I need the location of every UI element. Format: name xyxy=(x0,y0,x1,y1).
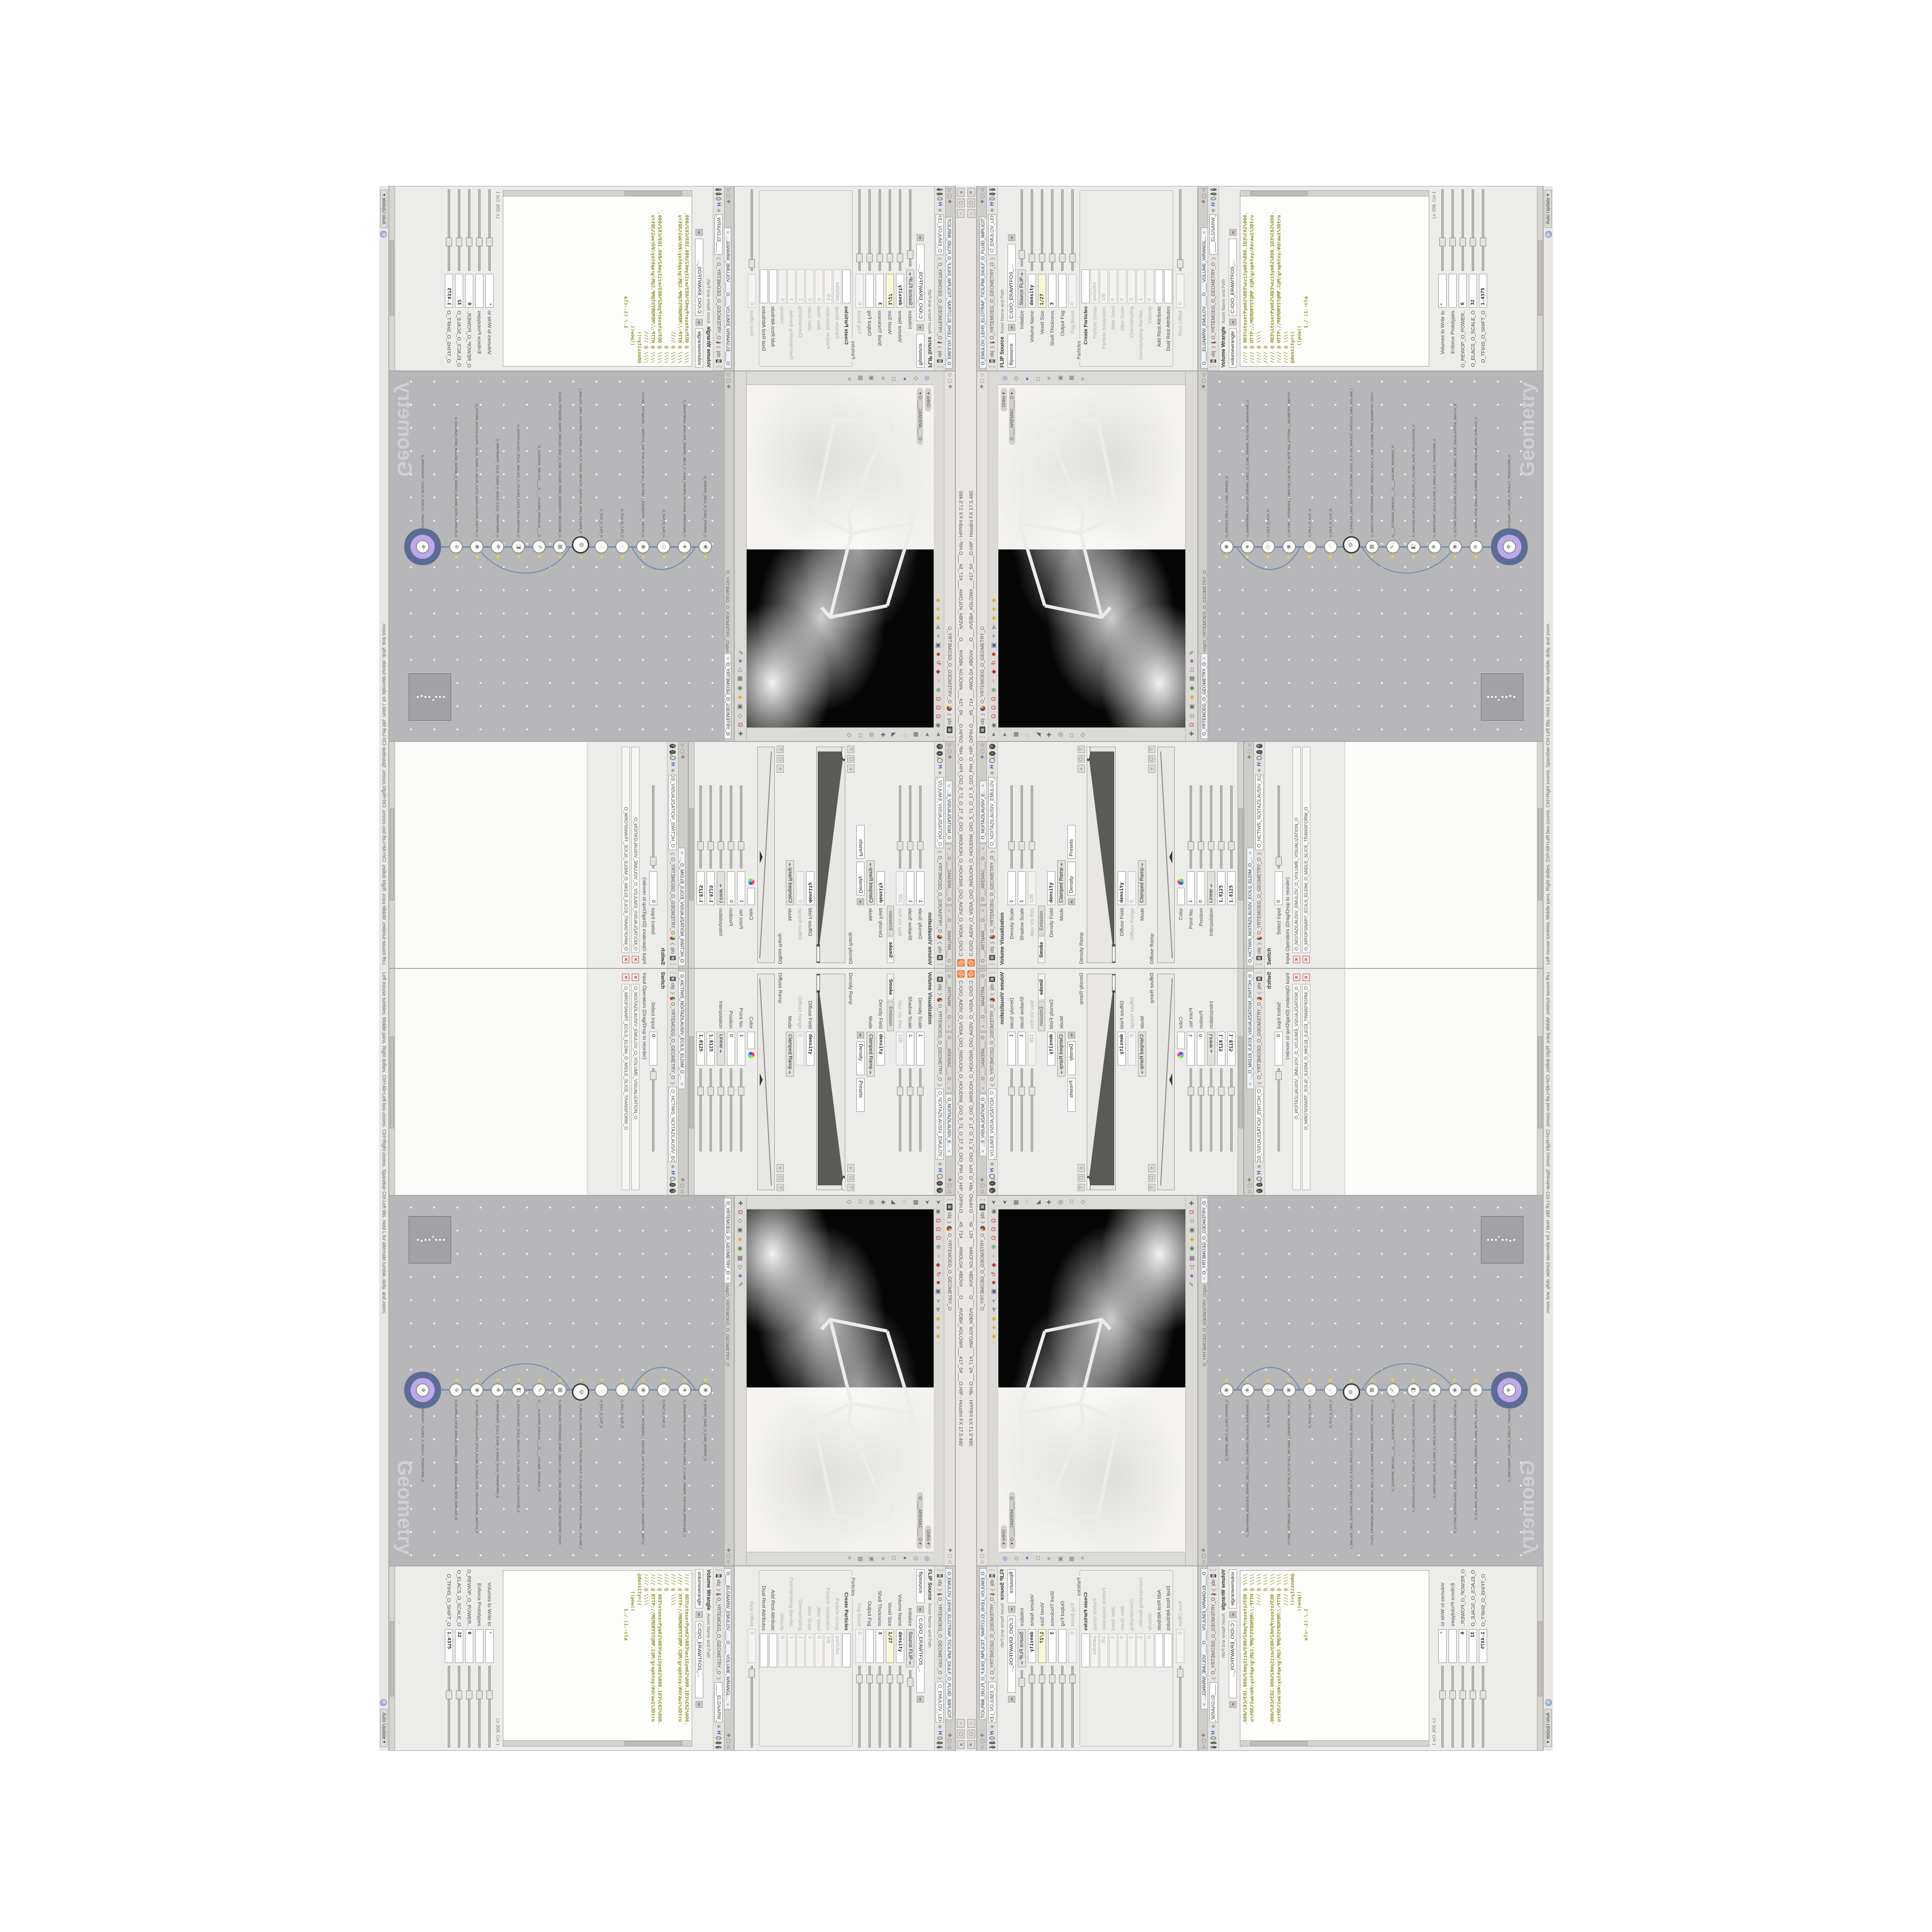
slider[interactable] xyxy=(1210,785,1212,868)
slider[interactable] xyxy=(1472,189,1474,271)
network-path[interactable]: /obj/O_YRTEMOEG_O_GEOMETRY_O xyxy=(724,1284,730,1366)
slider[interactable] xyxy=(740,1068,742,1151)
node-name-field[interactable]: O_EMULOV_LEHS_ELCITRAP_TICILPMI_DI xyxy=(936,214,944,255)
asset-path-field[interactable]: C:/O/O_ERAWTFOS_... xyxy=(695,1621,703,1698)
network-node[interactable]: ◍ O_EMULOV_LEHS_ELCITRAP_TICILPMI_DIULF_… xyxy=(1345,1383,1358,1548)
node-flag-icon[interactable] xyxy=(663,555,666,558)
slider[interactable] xyxy=(1278,785,1280,868)
search-icon[interactable] xyxy=(989,1174,995,1179)
slider[interactable] xyxy=(1010,1068,1013,1151)
asset-name-field[interactable]: volumewrangle xyxy=(1229,1569,1237,1608)
help-icon[interactable]: ? xyxy=(1256,1189,1263,1193)
minimize-button[interactable]: – xyxy=(957,209,965,218)
pane-tab[interactable]: O ___ARTNAM___ O...✕ xyxy=(980,906,986,966)
diffuse-ramp-widget[interactable] xyxy=(757,974,775,1190)
node-flag-icon[interactable] xyxy=(455,1378,458,1381)
network-minimap[interactable] xyxy=(409,1216,451,1264)
camera-pill[interactable]: O ___AREMAC___ O ▾ xyxy=(1009,1492,1015,1549)
search-icon[interactable] xyxy=(670,1177,676,1181)
network-node[interactable]: ◈ O_EMARFERIW_NOGYLOP_EREHPS_EBUC_O_CUBE… xyxy=(1241,1383,1254,1548)
slider[interactable] xyxy=(448,1666,450,1747)
asset-path-field[interactable]: C:/O/O_ERAWTFOS_... xyxy=(1229,239,1237,316)
vex-snippet-editor[interactable]: //// @ 0D3%steserPym62%0D3%eziSym62%000.… xyxy=(503,1570,692,1747)
node-name-field[interactable]: O_NOITAZILAUSIV_EMULOV_O_VO xyxy=(936,1089,944,1160)
ramp-controls[interactable]: ＋▢▽ xyxy=(777,746,784,773)
node-flag-icon[interactable] xyxy=(1433,1378,1435,1381)
camera-pill[interactable]: O ___AREMAC___ O ▾ xyxy=(917,388,923,445)
network-node[interactable]: ◧ O_NOITAZILAUSIV_ECILS_EMULOV_O_VOLUME_… xyxy=(512,388,525,554)
info-icon[interactable]: i xyxy=(937,1181,943,1186)
network-node[interactable]: ✥ O_MROFSNART_ECILS_ELDIM_O_MIDLE_SLICE_… xyxy=(491,1383,504,1548)
slider[interactable] xyxy=(1179,189,1181,271)
search-icon[interactable] xyxy=(1256,756,1262,760)
slider[interactable] xyxy=(1210,1068,1212,1151)
search-icon[interactable] xyxy=(716,197,722,200)
network-node[interactable]: ◉ O_EREHPS_EBUC_O_CUBE_SPHERE_O xyxy=(1221,1383,1233,1548)
gear-icon[interactable]: ✳ xyxy=(937,1724,943,1729)
pane-tab[interactable]: O____ELGNARW_EMULOV____O____VOLUME_WRANG… xyxy=(724,1568,731,1709)
help-icon[interactable]: ? xyxy=(937,188,943,191)
houdini-help-icon[interactable]: H xyxy=(1256,762,1262,766)
network-node[interactable]: ▦ O_SNOGYLOP_YRTEMOEG_MORF_EMULOV_BDV_O_… xyxy=(1366,1383,1378,1548)
network-node[interactable]: ◉ O_HCTIWS_YRTEMOEG_LANRETXE_LANRETNI_O_… xyxy=(637,388,649,554)
network-node[interactable]: ◌ O_PILC_O_CLIP_O xyxy=(616,388,628,554)
presets-menu[interactable]: Presets xyxy=(856,1078,865,1112)
pane-tab[interactable]: O_EMULOV_LEHS_ELCITRAP_TICILPMI_DIULF_O_… xyxy=(946,1568,952,1720)
node-flag-icon[interactable] xyxy=(476,1378,479,1381)
node-flag-icon[interactable] xyxy=(422,1378,425,1381)
slider[interactable] xyxy=(458,189,460,271)
close-button[interactable]: ✕ xyxy=(957,188,965,197)
auto-update-selector[interactable]: Auto Update ▾ xyxy=(380,1709,387,1747)
viewport-render-area[interactable]: Ortho ▾O ___AREMAC___ O ▾ xyxy=(746,1209,934,1552)
minimize-button[interactable]: – xyxy=(957,1719,965,1728)
tab-emission[interactable]: Emission xyxy=(1038,906,1045,936)
search-icon[interactable] xyxy=(989,197,995,200)
gear-icon[interactable]: ✳ xyxy=(989,208,995,213)
ramp-controls[interactable]: ＋▢▽ xyxy=(1148,1164,1155,1191)
breadcrumb-geo[interactable]: O_YRTEMOEG_O_GEOMETRY_O xyxy=(990,1004,995,1081)
node-flag-icon[interactable] xyxy=(422,555,425,558)
node-name-field[interactable]: O_NOITAZILAUSIV_EMULOV_O_VO xyxy=(936,777,944,848)
slider[interactable] xyxy=(1031,189,1033,271)
link-arrows-icon[interactable]: ⇧⇩ xyxy=(989,1568,995,1572)
node-flag-icon[interactable] xyxy=(663,1378,666,1381)
pane-tab[interactable]: O_NOITAZILAUSIV_E...✕ xyxy=(946,1094,952,1156)
node-flag-icon[interactable] xyxy=(1370,1378,1373,1381)
slider[interactable] xyxy=(889,1666,891,1747)
search-icon[interactable] xyxy=(1256,1177,1262,1181)
remove-icon[interactable]: ✕ xyxy=(632,956,639,963)
pane-controls[interactable]: ✚▢◁ xyxy=(724,1733,731,1748)
node-flag-icon[interactable] xyxy=(1287,555,1290,558)
slider[interactable] xyxy=(909,785,911,868)
breadcrumb-root[interactable]: obj xyxy=(990,947,995,953)
gear-icon[interactable]: ✳ xyxy=(1210,1724,1217,1729)
search-icon[interactable] xyxy=(1210,1736,1216,1740)
density-ramp-widget[interactable] xyxy=(816,747,845,963)
node-flag-icon[interactable] xyxy=(1308,1378,1311,1381)
node-flag-icon[interactable] xyxy=(1453,1378,1456,1381)
network-node[interactable]: ◉ O_HCTIWS_NOITAZILAUSIV_ECILS_ELDIM_O_M… xyxy=(1449,388,1462,554)
slider[interactable] xyxy=(919,1068,922,1151)
h-scrollbar[interactable] xyxy=(1537,186,1543,370)
v-scrollbar[interactable] xyxy=(1240,191,1429,197)
obj-context-icon[interactable]: ▦ xyxy=(947,726,952,733)
slider[interactable] xyxy=(1441,189,1444,271)
pane-controls[interactable]: ✚▢◁ xyxy=(724,1548,731,1563)
network-node[interactable]: ▦ O_SNOGYLOP_YRTEMOEG_MORF_EMULOV_BDV_O_… xyxy=(1366,388,1378,554)
gear-icon[interactable]: ✳ xyxy=(1256,1164,1263,1168)
node-flag-icon[interactable] xyxy=(1507,555,1510,558)
tab-smoke[interactable]: Smoke xyxy=(1038,937,1045,963)
slider[interactable] xyxy=(899,189,901,271)
color-wheel-icon[interactable] xyxy=(748,1052,754,1058)
node-flag-icon[interactable] xyxy=(1391,1378,1394,1381)
network-node[interactable]: ◍ O_EMULOV_LEHS_ELCITRAP_TICILPMI_DIULF_… xyxy=(1345,388,1358,554)
node-name-field[interactable]: O_NOITAZILAUSIV_EMULOV_O_VO xyxy=(988,1089,996,1160)
slider[interactable] xyxy=(1010,785,1013,868)
houdini-help-icon[interactable]: H xyxy=(937,1168,943,1172)
houdini-help-icon[interactable]: H xyxy=(937,765,943,769)
network-node[interactable]: ✥ O_MROFSNART_TLUSER_O_RESULT_TRANSFORM_… xyxy=(416,1383,429,1548)
h-scrollbar[interactable] xyxy=(389,186,395,370)
v-scrollbar[interactable] xyxy=(503,1740,692,1746)
density-ramp-widget[interactable] xyxy=(1087,747,1116,963)
network-minimap[interactable] xyxy=(1481,673,1523,721)
pane-tab[interactable]: O_YRTEMOEG_O_GEOMETRY_O✕ xyxy=(724,653,731,739)
link-arrows-icon[interactable]: ⇧⇩ xyxy=(937,365,943,369)
ramp-controls[interactable]: ＋▢▽ xyxy=(1148,746,1155,773)
node-flag-icon[interactable] xyxy=(1225,1378,1228,1381)
search-icon[interactable] xyxy=(937,758,943,763)
slider[interactable] xyxy=(858,189,861,271)
help-icon[interactable]: ? xyxy=(716,1746,722,1748)
slider[interactable] xyxy=(899,1666,901,1747)
tab-smoke[interactable]: Smoke xyxy=(1038,974,1045,1000)
node-flag-icon[interactable] xyxy=(538,555,541,558)
gear-icon[interactable]: ✳ xyxy=(937,771,943,775)
gear-icon[interactable]: ✳ xyxy=(989,771,995,775)
obj-context-icon[interactable]: ▦ xyxy=(670,977,676,981)
network-node[interactable]: ◇ O_PILF_O_FLIP_O xyxy=(657,1383,670,1548)
slider[interactable] xyxy=(740,785,742,868)
network-node[interactable]: ◧ O_NOITAZILAUSIV_ECILS_EMULOV_O_VOLUME_… xyxy=(1407,1383,1420,1548)
diffuse-ramp-widget[interactable] xyxy=(1157,974,1175,1190)
pane-controls[interactable]: ✚▢◁ xyxy=(946,1178,952,1193)
camera-pill[interactable]: Ortho ▾ xyxy=(925,1525,931,1549)
slider[interactable] xyxy=(488,189,491,271)
slider[interactable] xyxy=(1179,1666,1181,1747)
slider[interactable] xyxy=(1031,1068,1033,1151)
help-icon[interactable]: ? xyxy=(670,744,676,748)
slider[interactable] xyxy=(1061,189,1064,271)
pane-controls[interactable]: ✚▢◁ xyxy=(1201,373,1207,389)
help-icon[interactable]: ? xyxy=(937,1188,943,1193)
link-arrows-icon[interactable]: ⇧⇩ xyxy=(946,1198,953,1202)
remove-icon[interactable]: ✕ xyxy=(1293,974,1300,981)
network-node[interactable]: ✥ O_MROFSNART_TLUSER_O_RESULT_TRANSFORM_… xyxy=(1503,1383,1516,1548)
camera-pill[interactable]: Ortho ▾ xyxy=(1001,1525,1007,1549)
node-flag-icon[interactable] xyxy=(642,555,645,558)
v-scrollbar[interactable] xyxy=(1240,1740,1429,1746)
minimize-button[interactable]: – xyxy=(967,209,975,218)
node-flag-icon[interactable] xyxy=(1474,555,1477,558)
houdini-help-icon[interactable]: H xyxy=(989,1731,995,1734)
link-arrows-icon[interactable]: ⇧⇩ xyxy=(979,735,986,739)
network-node[interactable]: ◇ O_PILF_O_FLIP_O xyxy=(1262,388,1275,554)
asset-name-field[interactable]: flipsource xyxy=(916,334,924,368)
remove-icon[interactable]: ✕ xyxy=(623,956,630,963)
node-flag-icon[interactable] xyxy=(517,1378,520,1381)
node-name-field[interactable]: O_HCTIWS_NOITAZILAUSIV_ECILS_ELDIM_O_ xyxy=(1255,1087,1264,1162)
network-node[interactable]: ◌ O_PILC_O_CLIP_O xyxy=(1304,388,1316,554)
node-name-field[interactable]: O_EMULOV_LEHS_ELCITRAP_TICILPMI_DI xyxy=(988,214,996,255)
slider[interactable] xyxy=(879,189,881,271)
ramp-prev-icon[interactable]: ◂▸ xyxy=(1068,1032,1075,1038)
slider[interactable] xyxy=(858,1666,861,1747)
pane-controls[interactable]: ✚▢◁ xyxy=(980,188,986,204)
network-node[interactable]: ◍ O_EMULOV_LEHS_ELCITRAP_TICILPMI_DIULF_… xyxy=(574,388,587,554)
ramp-prev-icon[interactable]: ◂▸ xyxy=(857,898,864,905)
slider[interactable] xyxy=(1031,1666,1033,1747)
slider[interactable] xyxy=(730,1068,732,1151)
pane-tab[interactable]: O ___AREMAC___ O...✕ xyxy=(946,1032,952,1093)
camera-pill[interactable]: Ortho ▾ xyxy=(925,388,931,412)
node-name-field[interactable]: ____ELGNARW_EMULOV____O____VOl xyxy=(1209,214,1218,255)
pane-controls[interactable]: ✚▢◁ xyxy=(980,744,986,759)
node-flag-icon[interactable] xyxy=(1507,1378,1510,1381)
asset-name-field[interactable]: volumewrangle xyxy=(695,328,703,368)
node-flag-icon[interactable] xyxy=(476,555,479,558)
slider[interactable] xyxy=(1462,189,1464,271)
slider[interactable] xyxy=(1021,1068,1023,1151)
obj-context-icon[interactable]: ▦ xyxy=(670,956,676,960)
obj-context-icon[interactable]: ▦ xyxy=(989,955,995,960)
asset-path-field[interactable]: C:/O/O_ERAWTFOS_... xyxy=(916,244,924,321)
network-minimap[interactable] xyxy=(1481,1216,1523,1264)
h-scrollbar[interactable] xyxy=(1537,742,1543,968)
h-scrollbar[interactable] xyxy=(1537,969,1543,1195)
slider[interactable] xyxy=(730,785,732,868)
slider[interactable] xyxy=(458,1666,460,1747)
slider[interactable] xyxy=(868,1666,871,1747)
help-icon[interactable]: ? xyxy=(989,744,995,749)
link-arrows-icon[interactable]: ⇧⇩ xyxy=(1256,962,1263,966)
density-ramp-widget[interactable] xyxy=(1087,974,1116,1190)
slider[interactable] xyxy=(1230,785,1233,868)
houdini-help-icon[interactable]: H xyxy=(716,202,722,206)
node-flag-icon[interactable] xyxy=(1329,555,1332,558)
close-button[interactable]: ✕ xyxy=(967,1740,975,1749)
minimize-button[interactable]: – xyxy=(967,1719,975,1728)
slider[interactable] xyxy=(1472,1666,1474,1747)
breadcrumb-geo[interactable]: O_YRTEMOEG_O_GEOMETRY_O xyxy=(938,1004,943,1081)
node-flag-icon[interactable] xyxy=(1246,555,1249,558)
auto-update-selector[interactable]: Auto Update ▾ xyxy=(1545,190,1552,228)
restore-button[interactable]: ▢ xyxy=(957,1730,965,1738)
h-scrollbar[interactable] xyxy=(389,742,395,968)
ramp-controls[interactable]: ＋▢▽ xyxy=(1078,746,1085,773)
pane-tab[interactable]: O_HCTIWS_NOITAZILAUSIV_ECILS_ELDIM_O_...… xyxy=(679,971,685,1089)
search-icon[interactable] xyxy=(989,758,995,763)
slider[interactable] xyxy=(488,1666,491,1747)
presets-menu[interactable]: Presets xyxy=(1067,825,1076,859)
tab-emission[interactable]: Emission xyxy=(1038,1001,1045,1032)
slider[interactable] xyxy=(652,785,654,868)
network-node[interactable]: ◇ O_PILF_O_FLIP_O xyxy=(657,388,670,554)
network-canvas[interactable]: Geometry ◉ O_EREHPS_EBUC_O_CUBE_SPHERE_O xyxy=(389,371,724,741)
vex-snippet-editor[interactable]: //// @ 0D3%steserPym62%0D3%eziSym62%000.… xyxy=(1240,190,1429,367)
slider[interactable] xyxy=(468,189,470,271)
vex-snippet-editor[interactable]: //// @ 0D3%steserPym62%0D3%eziSym62%000.… xyxy=(1240,1570,1429,1747)
help-icon[interactable]: ? xyxy=(937,1746,943,1748)
network-node[interactable]: ◉ O_HCTIWS_NOITAZILAUSIV_ECILS_ELDIM_O_M… xyxy=(1449,1383,1462,1548)
camera-pill[interactable]: O ___AREMAC___ O ▾ xyxy=(917,1492,923,1549)
node-flag-icon[interactable] xyxy=(559,555,562,558)
network-node[interactable]: ◉ O_HCTIWS_NOITAZILAUSIV_ECILS_ELDIM_O_M… xyxy=(470,1383,483,1548)
network-node[interactable]: ◉ O_HCTIWS_YRTEMOEG_LANRETXE_LANRETNI_O_… xyxy=(1283,388,1295,554)
node-flag-icon[interactable] xyxy=(1370,555,1373,558)
link-arrows-icon[interactable]: ⇧⇩ xyxy=(979,1198,986,1202)
color-wheel-icon[interactable] xyxy=(748,879,754,885)
camera-pill[interactable]: O ___AREMAC___ O ▾ xyxy=(1009,388,1015,445)
slider[interactable] xyxy=(909,1068,911,1151)
network-minimap[interactable] xyxy=(409,673,451,721)
pane-tab[interactable]: O____ELGNARW_EMULOV____O____VOLUME_WRANG… xyxy=(1201,1568,1207,1709)
node-flag-icon[interactable] xyxy=(455,555,458,558)
slider[interactable] xyxy=(1031,785,1033,868)
slider[interactable] xyxy=(1451,189,1454,271)
link-arrows-icon[interactable]: ⇧⇩ xyxy=(989,365,995,369)
remove-icon[interactable]: ✕ xyxy=(1303,974,1310,981)
auto-update-selector[interactable]: Auto Update ▾ xyxy=(380,190,387,228)
gear-icon[interactable]: ✳ xyxy=(716,1724,722,1729)
link-arrows-icon[interactable]: ⇧⇩ xyxy=(937,971,943,975)
network-node[interactable]: ✥ O_MROFSNART_TLUSER_O_RESULT_TRANSFORM_… xyxy=(416,388,429,554)
search-icon[interactable] xyxy=(937,197,943,200)
node-flag-icon[interactable] xyxy=(497,555,499,558)
link-arrows-icon[interactable]: ⇧⇩ xyxy=(937,962,943,966)
link-arrows-icon[interactable]: ⇧⇩ xyxy=(715,1568,722,1572)
slider[interactable] xyxy=(879,1666,881,1747)
pane-controls[interactable]: ✚▢◁ xyxy=(1201,188,1207,204)
node-name-field[interactable]: ____ELGNARW_EMULOV____O____VOl xyxy=(715,214,723,255)
node-flag-icon[interactable] xyxy=(1329,1378,1332,1381)
info-icon[interactable]: i xyxy=(937,751,943,756)
h-scrollbar[interactable] xyxy=(1237,969,1243,1195)
slider[interactable] xyxy=(448,189,450,271)
houdini-help-icon[interactable]: H xyxy=(670,762,676,766)
network-node[interactable]: ◧ O_NOITAZILAUSIV_ECILS_EMULOV_O_VOLUME_… xyxy=(512,1383,525,1548)
asset-name-field[interactable]: volumewrangle xyxy=(695,1569,703,1608)
tab-smoke[interactable]: Smoke xyxy=(887,974,894,1000)
slider[interactable] xyxy=(710,785,712,868)
network-path[interactable]: /obj/O_YRTEMOEG_O_GEOMETRY_O xyxy=(724,570,730,653)
network-node[interactable]: ⊕ O_ECAFRUS_HTIW_EMULOV_EGREM_O_MERGE_VO… xyxy=(1470,1383,1482,1548)
asset-name-field[interactable]: flipsource xyxy=(916,1569,924,1603)
network-node[interactable]: ▦ O_SNOGYLOP_YRTEMOEG_MORF_EMULOV_BDV_O_… xyxy=(554,388,566,554)
slider[interactable] xyxy=(1451,1666,1454,1747)
v-scrollbar[interactable] xyxy=(503,191,692,197)
color-wheel-icon[interactable] xyxy=(1178,879,1184,885)
asset-path-field[interactable]: C:/O/O_ERAWTFOS_... xyxy=(1008,244,1016,321)
network-node[interactable]: ✎ O____ELGNARW_EMULOV____O____VOLUME_WRA… xyxy=(533,1383,545,1548)
node-name-field[interactable]: O_HCTIWS_NOITAZILAUSIV_ECILS_ELDIM_O_ xyxy=(669,775,677,850)
node-flag-icon[interactable] xyxy=(683,555,686,558)
houdini-help-icon[interactable]: H xyxy=(1210,1731,1216,1734)
vex-snippet-editor[interactable]: //// @ 0D3%steserPym62%0D3%eziSym62%000.… xyxy=(503,190,692,367)
network-node[interactable]: ◧ O_NOITAZILAUSIV_ECILS_EMULOV_O_VOLUME_… xyxy=(1407,388,1420,554)
slider[interactable] xyxy=(720,785,722,868)
obj-context-icon[interactable]: ▦ xyxy=(980,726,985,733)
network-node[interactable]: ◌ O_PILC_O_CLIP_O xyxy=(1324,1383,1337,1548)
search-icon[interactable] xyxy=(937,1736,943,1740)
link-arrows-icon[interactable]: ⇧⇩ xyxy=(946,735,953,739)
pane-controls[interactable]: ✚▢◁ xyxy=(679,1178,685,1193)
pane-controls[interactable]: ✚▢◁ xyxy=(946,744,952,759)
pane-controls[interactable]: ✚▢◁ xyxy=(980,1178,986,1193)
breadcrumb-root[interactable]: obj xyxy=(938,947,943,953)
ramp-controls[interactable]: ＋▢▽ xyxy=(847,746,854,773)
pane-tab[interactable]: O_NOITAZILAUSIV_E...✕ xyxy=(946,781,952,842)
link-arrows-icon[interactable]: ⇧⇩ xyxy=(1210,365,1217,369)
node-flag-icon[interactable] xyxy=(1266,1378,1269,1381)
network-node[interactable]: ✥ O_MROFSNART_ECILS_ELDIM_O_MIDLE_SLICE_… xyxy=(1428,388,1441,554)
network-node[interactable]: ⊕ O_ECAFRUS_HTIW_EMULOV_EGREM_O_MERGE_VO… xyxy=(1470,388,1482,554)
houdini-help-icon[interactable]: H xyxy=(1256,1171,1262,1175)
network-node[interactable]: ◌ O_PILC_O_CLIP_O xyxy=(595,388,608,554)
asset-name-field[interactable]: flipsource xyxy=(1008,334,1016,368)
ramp-prev-icon[interactable]: ◂▸ xyxy=(857,1032,864,1038)
help-icon[interactable]: ? xyxy=(989,1188,995,1193)
obj-context-icon[interactable]: ▦ xyxy=(1210,359,1216,363)
network-node[interactable]: ◉ O_HCTIWS_YRTEMOEG_LANRETXE_LANRETNI_O_… xyxy=(1283,1383,1295,1548)
slider[interactable] xyxy=(1190,785,1192,868)
h-scrollbar[interactable] xyxy=(389,1566,395,1750)
restore-button[interactable]: ▢ xyxy=(957,199,965,207)
obj-context-icon[interactable]: ▦ xyxy=(937,359,943,363)
slider[interactable] xyxy=(1051,1666,1053,1747)
search-icon[interactable] xyxy=(670,756,676,760)
node-flag-icon[interactable] xyxy=(1350,555,1352,558)
network-node[interactable]: ◌ O_PILC_O_CLIP_O xyxy=(1324,388,1337,554)
pane-controls[interactable]: ✚▢◁ xyxy=(946,1733,952,1748)
node-flag-icon[interactable] xyxy=(517,555,520,558)
ramp-controls[interactable]: ＋▢▽ xyxy=(847,1164,854,1191)
network-node[interactable]: ◉ O_EREHPS_EBUC_O_CUBE_SPHERE_O xyxy=(699,388,711,554)
pane-controls[interactable]: ✚▢◁ xyxy=(980,373,986,389)
network-node[interactable]: ✎ O____ELGNARW_EMULOV____O____VOLUME_WRA… xyxy=(533,388,545,554)
h-scrollbar[interactable] xyxy=(1537,1566,1543,1750)
node-flag-icon[interactable] xyxy=(580,1378,582,1381)
tab-emission[interactable]: Emission xyxy=(887,1001,894,1032)
slider[interactable] xyxy=(1482,189,1484,271)
slider[interactable] xyxy=(751,189,753,271)
gear-icon[interactable]: ✳ xyxy=(937,208,943,213)
help-icon[interactable]: ? xyxy=(989,1746,995,1748)
slider[interactable] xyxy=(1051,189,1053,271)
slider[interactable] xyxy=(909,1670,911,1747)
info-icon[interactable]: i xyxy=(989,1181,995,1186)
houdini-help-icon[interactable]: H xyxy=(716,1731,722,1734)
slider[interactable] xyxy=(1071,189,1074,271)
gear-icon[interactable]: ✳ xyxy=(937,1162,943,1166)
network-node[interactable]: ✥ O_MROFSNART_ECILS_ELDIM_O_MIDLE_SLICE_… xyxy=(1428,1383,1441,1548)
slider[interactable] xyxy=(699,785,702,868)
tab-smoke[interactable]: Smoke xyxy=(887,937,894,963)
remove-icon[interactable]: ✕ xyxy=(623,974,630,981)
